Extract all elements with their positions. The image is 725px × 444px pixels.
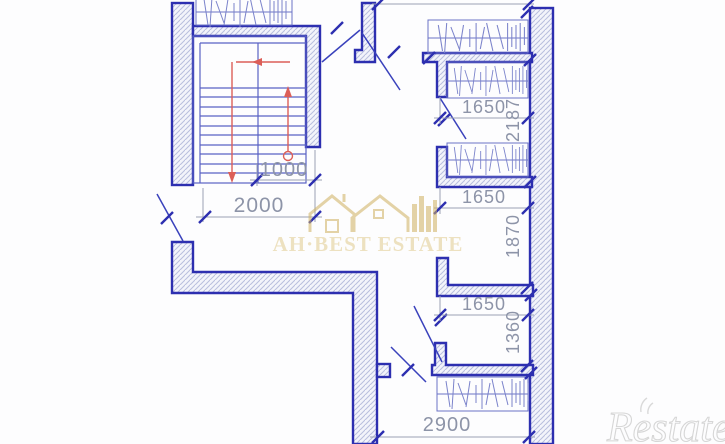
wall-partition-2 — [437, 147, 532, 187]
wall-right-outer — [530, 8, 553, 444]
dim-stair-flight-width: 1000 — [260, 159, 309, 181]
corner-logo: Restate — [606, 398, 725, 444]
agency-watermark: AH·BEST ESTATE — [273, 194, 464, 256]
corner-logo-text: Restate — [606, 405, 725, 444]
floor-plan-drawing: 1000 2000 1650 2187 1650 1870 1650 1360 … — [0, 0, 725, 444]
wall-partition-3 — [437, 258, 533, 296]
dim-mid-room-width: 1650 — [462, 187, 506, 207]
wall-stair-top-and-right — [193, 26, 320, 147]
dim-low-room-width: 1650 — [462, 294, 506, 314]
door-leaf-room3 — [414, 306, 442, 362]
door-leaf-left — [157, 194, 183, 241]
wardrobe-top-right — [428, 20, 528, 53]
agency-logo-houses-icon — [310, 194, 437, 232]
stair-arrow-down — [228, 172, 236, 183]
wall-left-outer — [172, 3, 193, 185]
dim-top-room-width: 1650 — [462, 97, 506, 117]
wardrobe-bottom-right — [437, 377, 528, 411]
dim-low-room-height: 1360 — [503, 310, 523, 354]
agency-watermark-text: AH·BEST ESTATE — [273, 232, 464, 256]
wardrobe-room1 — [447, 62, 528, 98]
wall-stub-bottom-center — [377, 364, 390, 377]
dim-stair-total-width: 2000 — [234, 194, 285, 217]
stair-arrow-left — [252, 58, 262, 66]
wardrobe-top-left — [196, 0, 292, 27]
dimension-texts: 1000 2000 1650 2187 1650 1870 1650 1360 … — [234, 97, 523, 436]
floor-plan-screenshot: 1000 2000 1650 2187 1650 1870 1650 1360 … — [0, 0, 725, 444]
dim-mid-room-height: 1870 — [503, 214, 523, 258]
dim-bottom-room-width: 2900 — [423, 414, 472, 436]
dim-top-room-height: 2187 — [503, 98, 523, 142]
door-leaf-bottom — [391, 347, 426, 382]
wall-bottom-left-L — [172, 242, 377, 444]
walls — [172, 3, 553, 444]
wardrobe-room2 — [447, 143, 528, 177]
